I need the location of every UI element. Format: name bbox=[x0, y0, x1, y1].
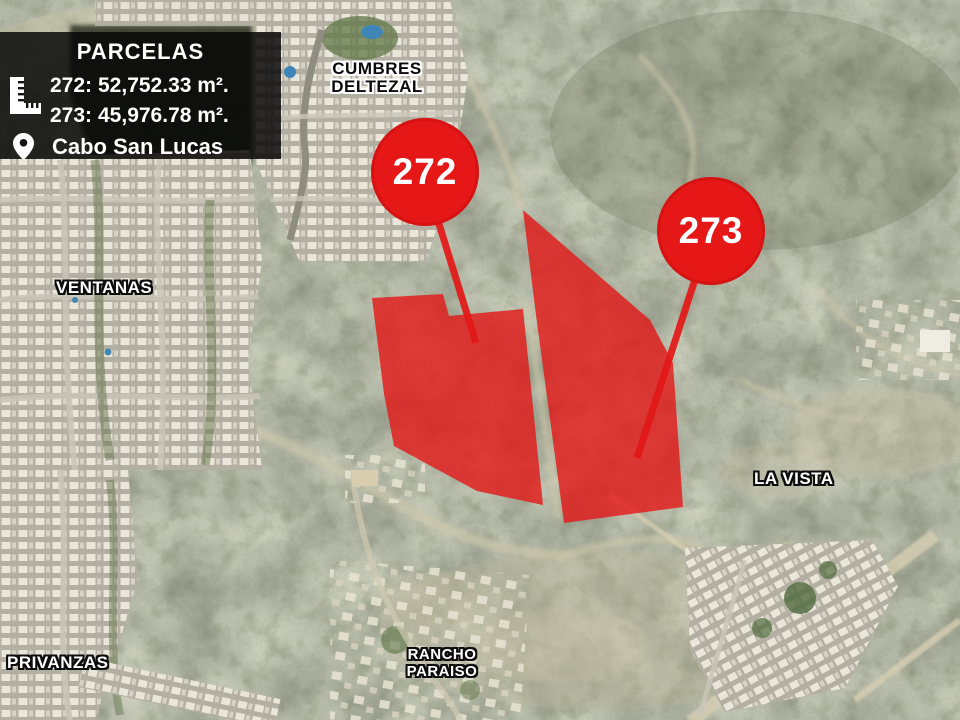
location-pin-icon bbox=[13, 133, 34, 159]
parcel-row-272: 272: 52,752.33 m². bbox=[50, 71, 281, 101]
parcel-273-badge-label: 273 bbox=[679, 210, 744, 252]
info-box-title: PARCELAS bbox=[0, 39, 281, 65]
housing-area-ventanas bbox=[0, 150, 262, 470]
parcel-272-id: 272: bbox=[50, 71, 98, 101]
parcel-273-badge[interactable]: 273 bbox=[657, 177, 765, 285]
label-cumbres-line1: CUMBRES bbox=[322, 60, 432, 78]
label-rancho-line1: RANCHO bbox=[392, 646, 492, 663]
parcel-272-badge[interactable]: 272 bbox=[371, 118, 479, 226]
label-cumbres-deltezal: CUMBRES DELTEZAL bbox=[322, 60, 432, 96]
parcel-info-box: PARCELAS 272: 52,752.33 m². 273: 45,976.… bbox=[0, 32, 281, 159]
label-cumbres-line2: DELTEZAL bbox=[322, 78, 432, 96]
parcel-272-area: 52,752.33 m². bbox=[98, 71, 229, 101]
label-privanzas: PRIVANZAS bbox=[7, 653, 108, 673]
parcel-row-273: 273: 45,976.78 m². bbox=[50, 101, 281, 131]
ruler-square-icon bbox=[8, 77, 41, 115]
label-rancho-line2: PARAISO bbox=[392, 663, 492, 680]
label-rancho-paraiso: RANCHO PARAISO bbox=[392, 646, 492, 680]
location-row: Cabo San Lucas bbox=[13, 133, 281, 159]
map-canvas: CUMBRES DELTEZAL VENTANAS LA VISTA PRIVA… bbox=[0, 0, 960, 720]
parcel-273-area: 45,976.78 m². bbox=[98, 101, 229, 131]
parcel-273-id: 273: bbox=[50, 101, 98, 131]
housing-area-lavista bbox=[856, 300, 960, 380]
location-name: Cabo San Lucas bbox=[52, 134, 223, 160]
parcel-272-badge-label: 272 bbox=[393, 151, 458, 193]
label-la-vista: LA VISTA bbox=[754, 469, 834, 489]
label-ventanas: VENTANAS bbox=[56, 278, 152, 298]
